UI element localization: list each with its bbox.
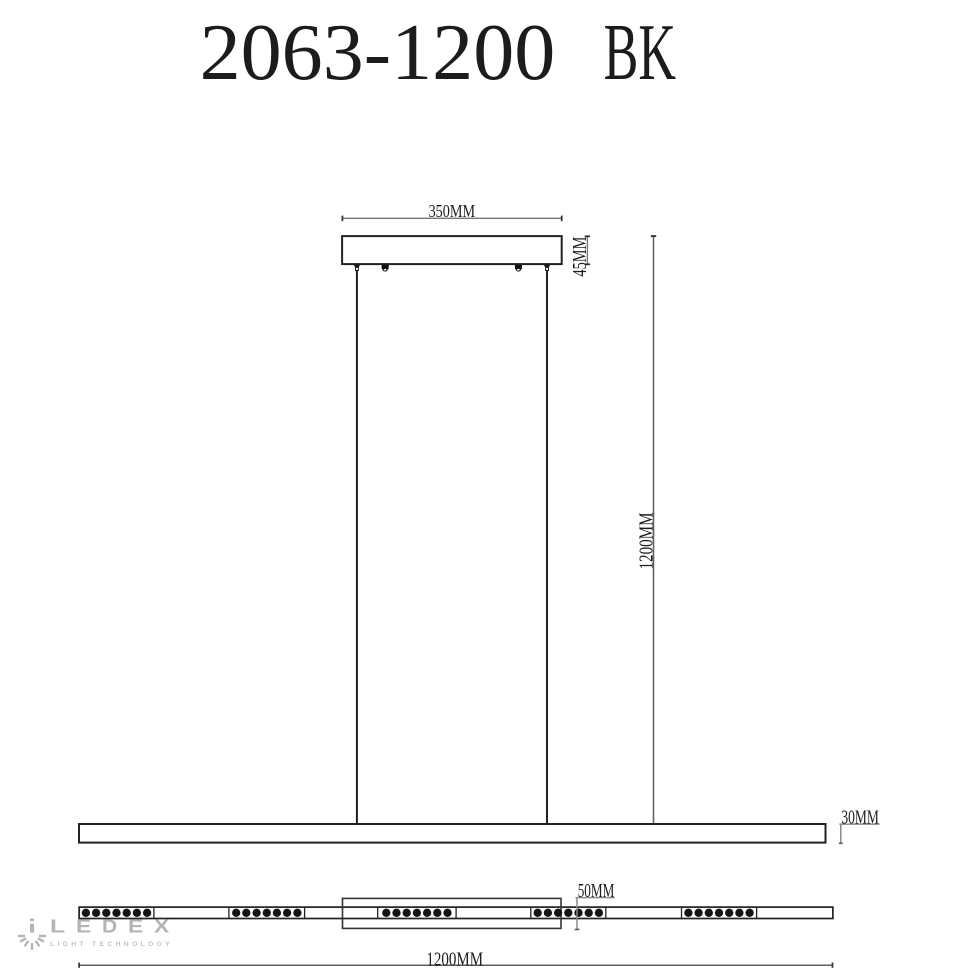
svg-text:50MM: 50MM [578,880,615,902]
svg-text:1200MM: 1200MM [426,948,483,970]
svg-text:30MM: 30MM [841,807,879,829]
svg-text:1200MM: 1200MM [636,512,658,569]
svg-text:350MM: 350MM [429,201,476,221]
svg-text:45MM: 45MM [569,236,591,276]
svg-text:2063-1200: 2063-1200 [200,9,556,97]
svg-text:BK: BK [604,9,676,97]
svg-text:L: L [50,916,65,937]
svg-text:LIGHT TECHNOLOGY: LIGHT TECHNOLOGY [50,941,173,948]
